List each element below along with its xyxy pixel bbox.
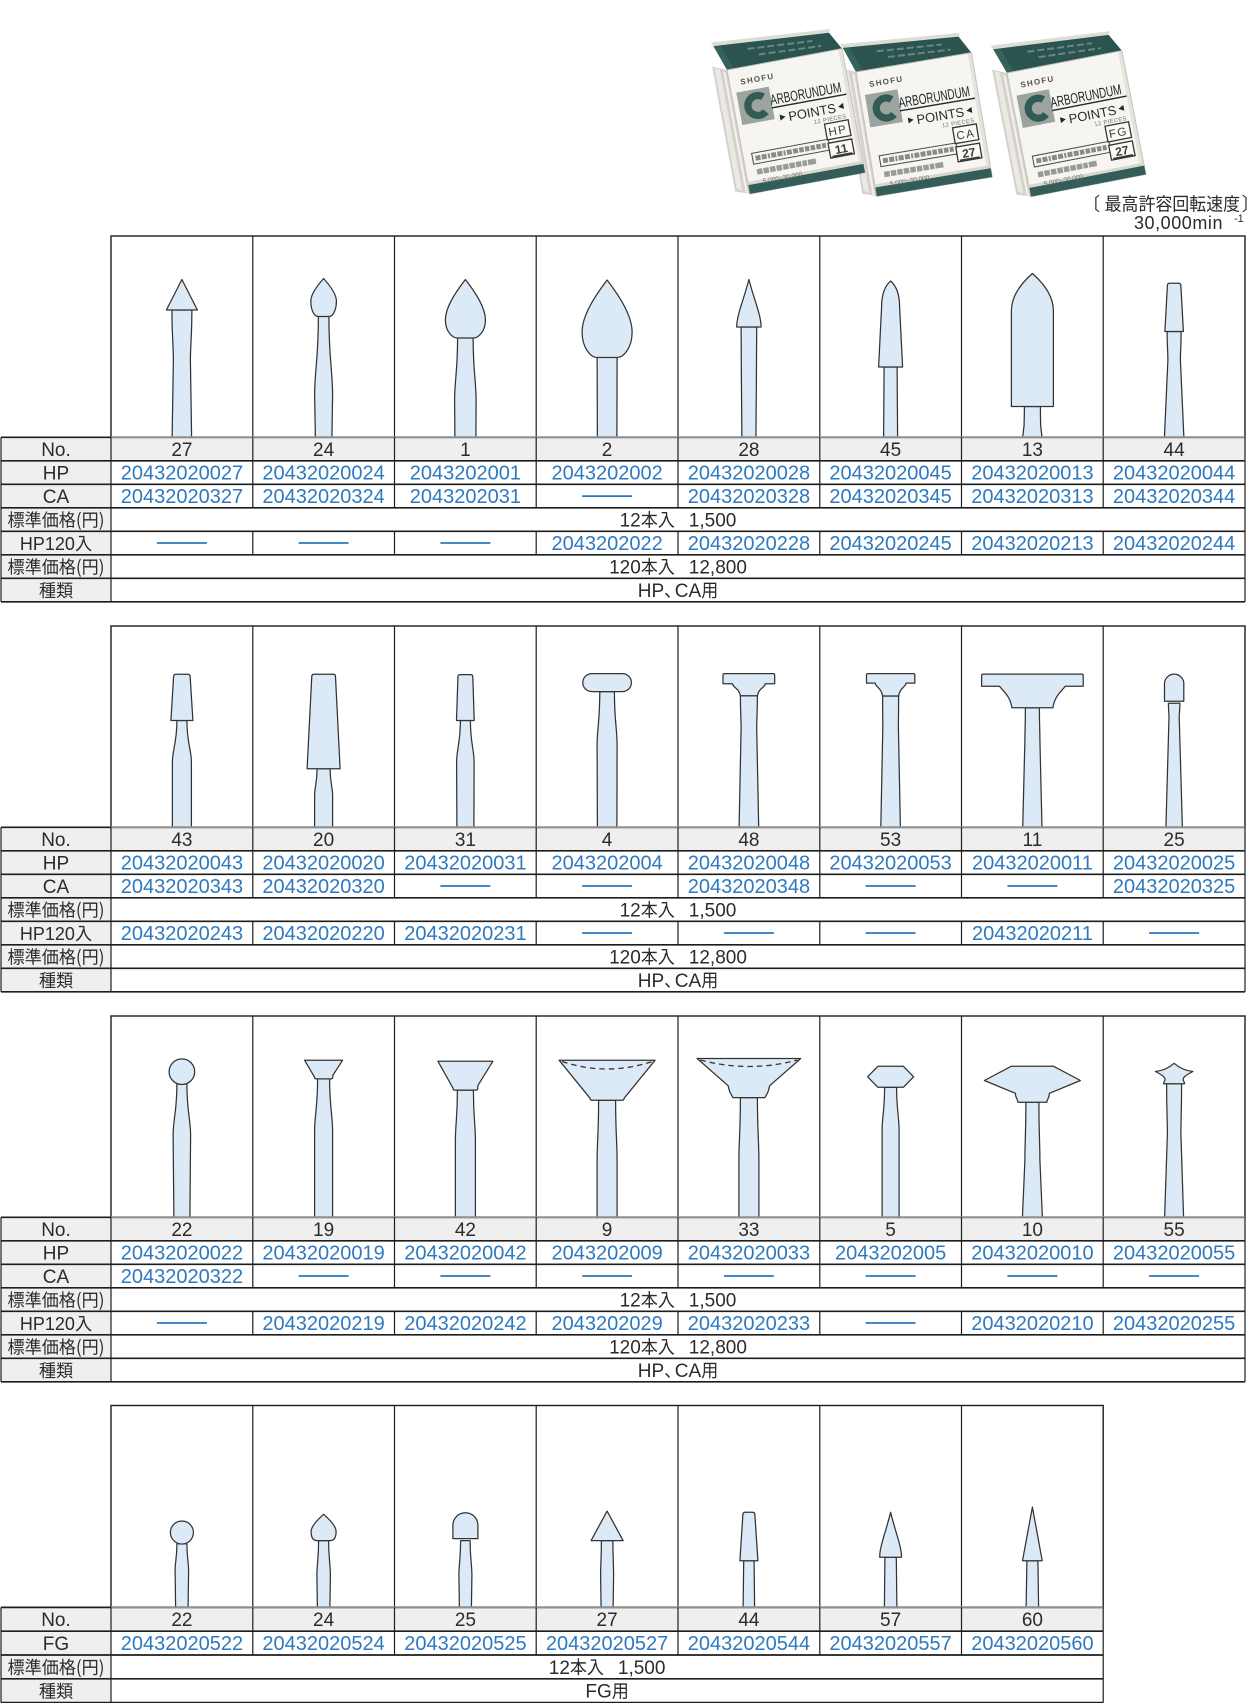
svg-text:20432020560: 20432020560: [971, 1633, 1093, 1655]
svg-text:20432020243: 20432020243: [121, 923, 243, 945]
svg-text:2043202004: 2043202004: [551, 852, 662, 874]
svg-text:20432020031: 20432020031: [404, 852, 526, 874]
svg-text:33: 33: [738, 1220, 759, 1241]
svg-text:-1: -1: [1234, 213, 1244, 225]
svg-text:4: 4: [602, 830, 613, 851]
svg-text:1,500: 1,500: [689, 510, 737, 531]
svg-text:9: 9: [602, 1220, 613, 1241]
svg-text:53: 53: [880, 830, 901, 851]
svg-text:20432020045: 20432020045: [829, 462, 951, 484]
svg-text:No.: No.: [41, 1610, 71, 1631]
svg-text:2043202002: 2043202002: [551, 462, 662, 484]
svg-text:HP: HP: [43, 1244, 69, 1265]
svg-text:20432020231: 20432020231: [404, 923, 526, 945]
svg-text:20432020044: 20432020044: [1113, 462, 1235, 484]
svg-text:HP: HP: [638, 1361, 664, 1382]
svg-text:20432020544: 20432020544: [688, 1633, 810, 1655]
svg-text:20432020210: 20432020210: [971, 1313, 1093, 1335]
svg-text:2043202031: 2043202031: [410, 486, 521, 508]
svg-text:12: 12: [620, 900, 641, 921]
svg-text:1: 1: [460, 440, 471, 461]
svg-text:12,800: 12,800: [689, 947, 747, 968]
svg-text:20432020219: 20432020219: [262, 1313, 384, 1335]
svg-text:2043202029: 2043202029: [551, 1313, 662, 1335]
svg-text:20432020233: 20432020233: [688, 1313, 810, 1335]
svg-text:11: 11: [1023, 830, 1043, 851]
svg-text:12: 12: [620, 1291, 641, 1312]
svg-text:24: 24: [313, 1610, 335, 1631]
svg-text:44: 44: [1164, 440, 1186, 461]
svg-text:120: 120: [609, 1338, 641, 1359]
svg-text:12,800: 12,800: [689, 1338, 747, 1359]
svg-text:20432020244: 20432020244: [1113, 533, 1235, 555]
svg-text:20: 20: [313, 830, 334, 851]
svg-text:20432020255: 20432020255: [1113, 1313, 1235, 1335]
svg-text:28: 28: [738, 440, 759, 461]
svg-text:20432020522: 20432020522: [121, 1633, 243, 1655]
svg-text:20432020027: 20432020027: [121, 462, 243, 484]
svg-text:20432020348: 20432020348: [688, 876, 810, 898]
svg-text:HP120: HP120: [20, 1314, 75, 1334]
svg-text:20432020019: 20432020019: [262, 1243, 384, 1265]
svg-text:60: 60: [1022, 1610, 1043, 1631]
svg-text:44: 44: [738, 1610, 760, 1631]
svg-text:43: 43: [171, 830, 192, 851]
svg-text:2043202001: 2043202001: [410, 462, 521, 484]
svg-text:20432020557: 20432020557: [829, 1633, 951, 1655]
svg-text:HP: HP: [638, 581, 664, 602]
svg-text:20432020011: 20432020011: [972, 852, 1093, 874]
svg-text:24: 24: [313, 440, 335, 461]
svg-text:No.: No.: [41, 440, 71, 461]
svg-text:CA: CA: [43, 1267, 70, 1288]
svg-text:20432020010: 20432020010: [971, 1243, 1093, 1265]
svg-text:20432020213: 20432020213: [971, 533, 1093, 555]
svg-text:20432020020: 20432020020: [262, 852, 384, 874]
svg-text:20432020043: 20432020043: [121, 852, 243, 874]
svg-text:2043202022: 2043202022: [551, 533, 662, 555]
svg-text:20432020245: 20432020245: [829, 533, 951, 555]
svg-text:20432020242: 20432020242: [404, 1313, 526, 1335]
svg-text:19: 19: [313, 1220, 334, 1241]
svg-text:20432020228: 20432020228: [688, 533, 810, 555]
svg-text:20432020320: 20432020320: [262, 876, 384, 898]
svg-text:CA: CA: [43, 487, 70, 508]
svg-text:45: 45: [880, 440, 901, 461]
svg-text:12: 12: [620, 510, 641, 531]
svg-text:12: 12: [549, 1658, 570, 1679]
svg-text:20432020042: 20432020042: [404, 1243, 526, 1265]
svg-text:31: 31: [455, 830, 476, 851]
svg-text:12,800: 12,800: [689, 557, 747, 578]
svg-text:2: 2: [602, 440, 613, 461]
svg-text:HP120: HP120: [20, 534, 75, 554]
svg-text:20432020028: 20432020028: [688, 462, 810, 484]
svg-text:20432020325: 20432020325: [1113, 876, 1235, 898]
svg-text:20432020527: 20432020527: [546, 1633, 668, 1655]
svg-text:20432020033: 20432020033: [688, 1243, 810, 1265]
svg-text:120: 120: [609, 947, 641, 968]
svg-text:25: 25: [455, 1610, 476, 1631]
svg-text:57: 57: [880, 1610, 901, 1631]
svg-text:CA: CA: [675, 1361, 702, 1382]
svg-text:20432020024: 20432020024: [262, 462, 384, 484]
svg-text:20432020025: 20432020025: [1113, 852, 1235, 874]
svg-text:2043202005: 2043202005: [835, 1243, 946, 1265]
svg-text:55: 55: [1164, 1220, 1185, 1241]
svg-text:HP120: HP120: [20, 924, 75, 944]
svg-text:20432020324: 20432020324: [262, 486, 384, 508]
svg-text:20432020328: 20432020328: [688, 486, 810, 508]
svg-text:10: 10: [1022, 1220, 1043, 1241]
svg-text:120: 120: [609, 557, 641, 578]
svg-text:27: 27: [171, 440, 192, 461]
svg-text:30,000min: 30,000min: [1134, 213, 1223, 233]
svg-text:No.: No.: [41, 1220, 71, 1241]
svg-text:1,500: 1,500: [618, 1658, 666, 1679]
svg-text:20432020525: 20432020525: [404, 1633, 526, 1655]
svg-text:CA: CA: [675, 971, 702, 992]
svg-text:FG: FG: [585, 1682, 611, 1703]
svg-text:20432020022: 20432020022: [121, 1243, 243, 1265]
svg-text:20432020322: 20432020322: [121, 1266, 243, 1288]
svg-text:20432020524: 20432020524: [262, 1633, 384, 1655]
svg-text:48: 48: [738, 830, 759, 851]
svg-text:20432020343: 20432020343: [121, 876, 243, 898]
svg-text:42: 42: [455, 1220, 476, 1241]
svg-text:20432020327: 20432020327: [121, 486, 243, 508]
svg-text:HP: HP: [43, 853, 69, 874]
svg-text:13: 13: [1022, 440, 1043, 461]
svg-text:No.: No.: [41, 830, 71, 851]
svg-text:5: 5: [885, 1220, 896, 1241]
svg-text:HP: HP: [43, 463, 69, 484]
svg-text:20432020055: 20432020055: [1113, 1243, 1235, 1265]
svg-text:1,500: 1,500: [689, 900, 737, 921]
svg-text:20432020211: 20432020211: [972, 923, 1093, 945]
svg-text:20432020053: 20432020053: [829, 852, 951, 874]
svg-text:20432020345: 20432020345: [829, 486, 951, 508]
svg-text:22: 22: [171, 1610, 192, 1631]
svg-text:20432020013: 20432020013: [971, 462, 1093, 484]
svg-text:27: 27: [597, 1610, 618, 1631]
svg-text:20432020048: 20432020048: [688, 852, 810, 874]
svg-text:20432020220: 20432020220: [262, 923, 384, 945]
svg-text:FG: FG: [43, 1634, 69, 1655]
svg-text:HP: HP: [638, 971, 664, 992]
svg-text:CA: CA: [675, 581, 702, 602]
svg-text:20432020313: 20432020313: [971, 486, 1093, 508]
svg-text:20432020344: 20432020344: [1113, 486, 1235, 508]
svg-text:1,500: 1,500: [689, 1291, 737, 1312]
svg-text:CA: CA: [43, 877, 70, 898]
svg-text:25: 25: [1164, 830, 1185, 851]
svg-text:2043202009: 2043202009: [551, 1243, 662, 1265]
svg-text:22: 22: [171, 1220, 192, 1241]
